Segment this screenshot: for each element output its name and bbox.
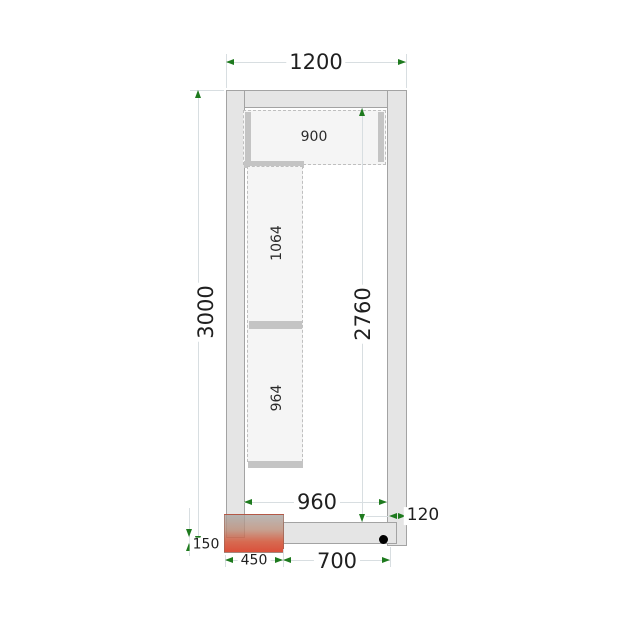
dim-outer-width-label: 1200: [286, 51, 345, 73]
arrow-down-icon: [186, 529, 192, 537]
shelf-top-right-bar: [378, 112, 384, 162]
dim-inner-height-label: 2760: [352, 284, 374, 343]
shelf-top-left-bar: [245, 112, 251, 162]
shelf-column-divider-bar: [249, 321, 302, 329]
dim-door-width-label: 450: [238, 554, 271, 569]
arrow-right-icon: [382, 557, 390, 563]
wall-right: [387, 90, 407, 546]
arrow-left-icon: [225, 557, 233, 563]
dim-inner-width-label: 960: [294, 491, 340, 513]
dim-outer-height-label: 3000: [195, 282, 217, 341]
dim-bottom-panel-label: 700: [314, 550, 360, 572]
arrow-left-icon: [226, 59, 234, 65]
corner-marker-dot: [379, 535, 388, 544]
arrow-up-icon: [195, 90, 201, 98]
wall-top: [226, 90, 407, 108]
shelf-column-region: [247, 166, 303, 462]
arrow-up-icon: [359, 108, 365, 116]
cold-room-drawing: 900 1064 964 1200 3000 2760 960: [0, 0, 630, 630]
arrow-right-icon: [398, 59, 406, 65]
extension-line: [366, 516, 389, 517]
dim-door-sill-label: 150: [190, 538, 223, 553]
shelf-column-bottom-bar: [248, 461, 303, 468]
dim-wall-thickness-label: 120: [404, 507, 442, 525]
extension-line: [390, 547, 391, 567]
extension-line: [406, 54, 407, 88]
arrow-left-icon: [283, 557, 291, 563]
arrow-left-icon: [389, 513, 397, 519]
arrow-down-icon: [359, 514, 365, 522]
shelf-upper-label: 1064: [269, 225, 285, 261]
shelf-lower-label: 964: [269, 385, 285, 412]
arrow-right-icon: [275, 557, 283, 563]
arrow-left-icon: [244, 499, 252, 505]
arrow-right-icon: [379, 499, 387, 505]
door-panel: [224, 514, 284, 553]
shelf-top-label: 900: [301, 129, 328, 145]
